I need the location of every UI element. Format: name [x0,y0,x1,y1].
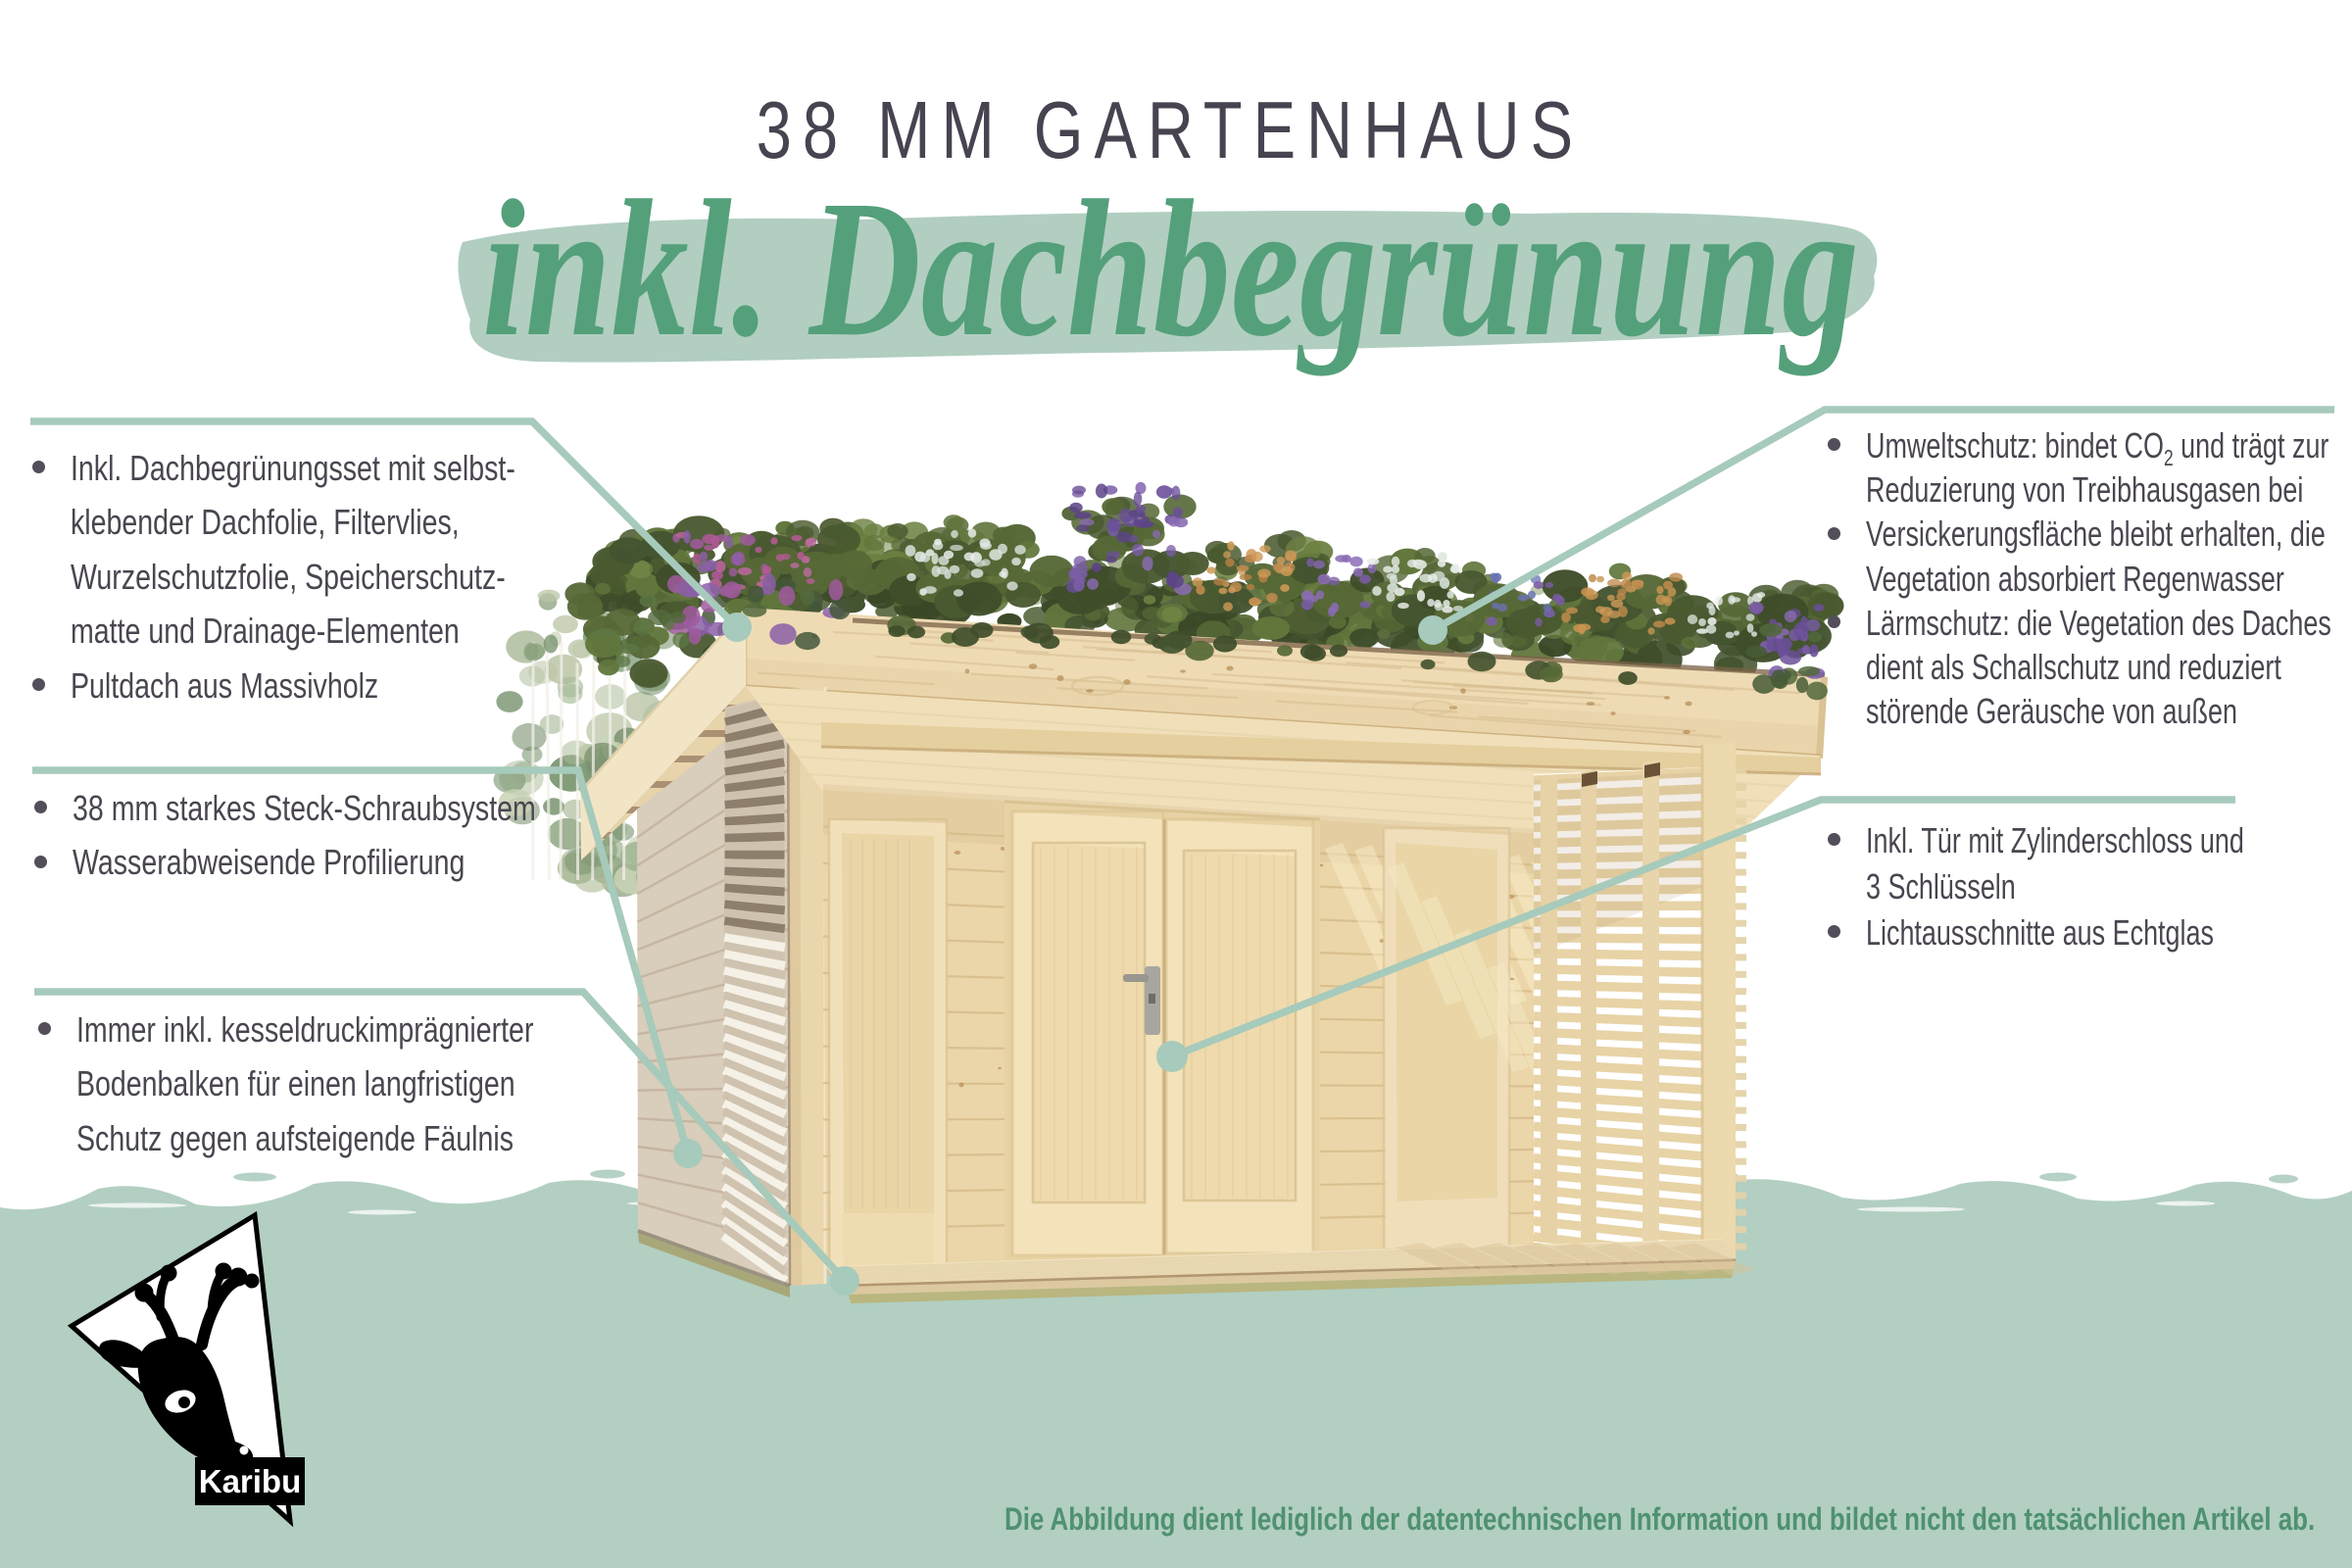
svg-text:Karibu: Karibu [199,1463,302,1499]
